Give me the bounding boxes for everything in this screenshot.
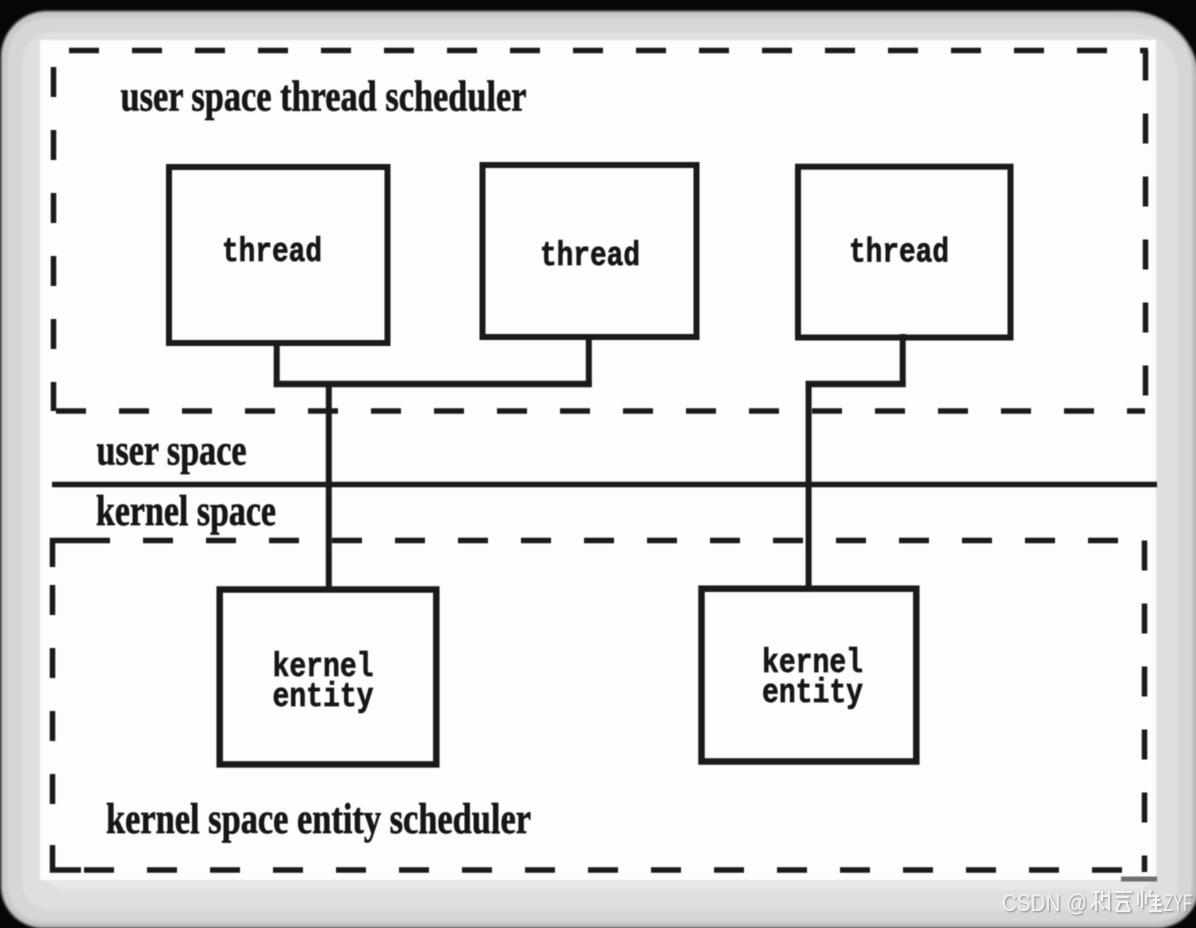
svg-text:user space thread scheduler: user space thread scheduler [121, 74, 527, 121]
svg-text:CSDN @: CSDN @ [1002, 890, 1087, 917]
svg-text:thread: thread [540, 238, 640, 276]
svg-text:thread: thread [222, 234, 322, 272]
svg-text:kernel space entity scheduler: kernel space entity scheduler [106, 796, 531, 843]
svg-text:entity: entity [273, 679, 374, 717]
svg-text:entity: entity [762, 675, 863, 713]
svg-text:thread: thread [849, 235, 949, 273]
svg-text:ZYF: ZYF [1164, 890, 1192, 917]
svg-text:user space: user space [97, 428, 247, 475]
svg-text:kernel space: kernel space [96, 488, 276, 535]
